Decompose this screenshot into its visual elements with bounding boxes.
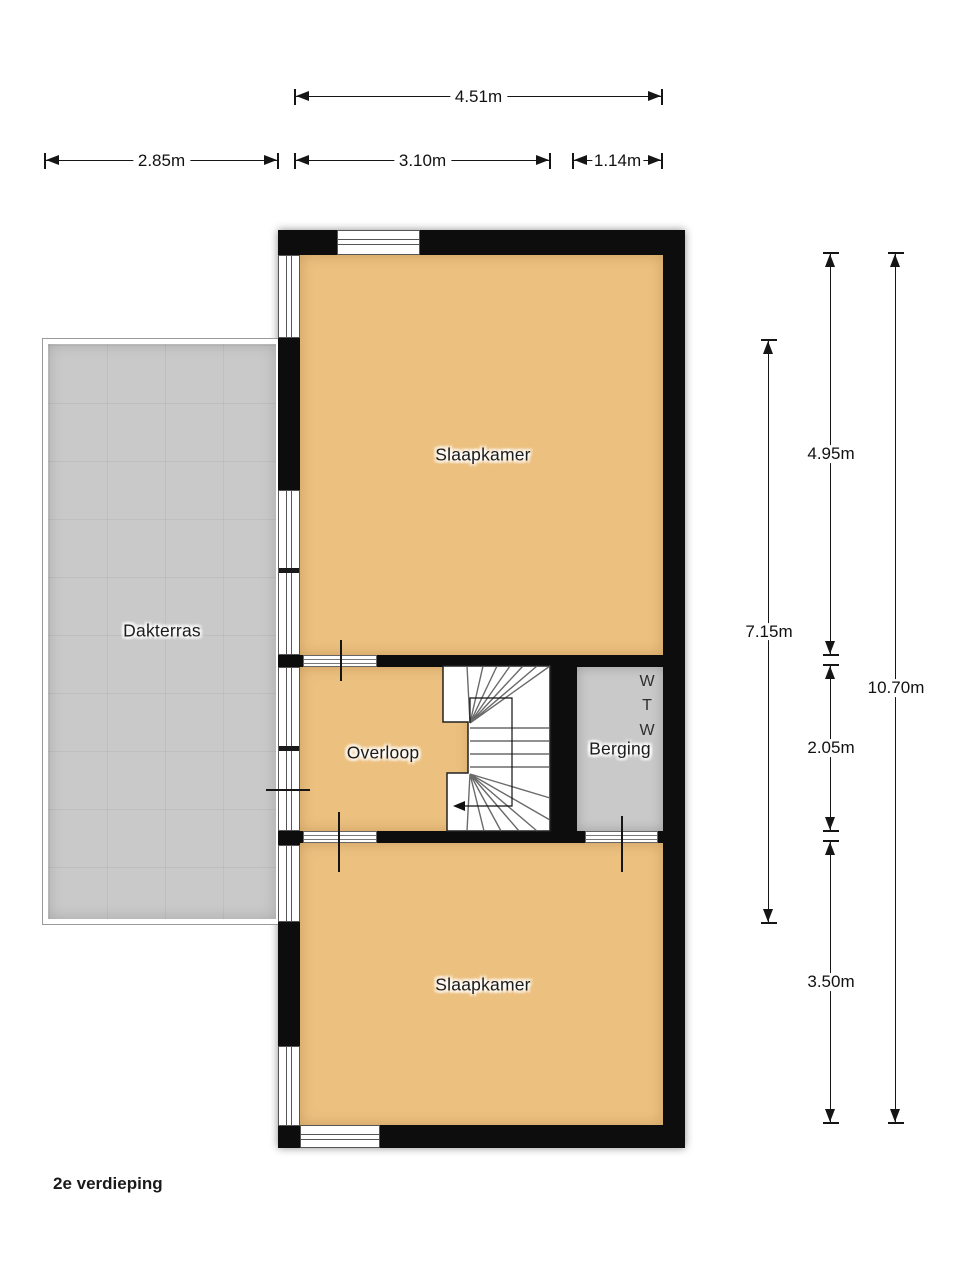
window-mullion [279,746,299,751]
storage-letter-t: T [642,697,652,715]
dimension-label: 10.70m [863,679,930,697]
door-swing-line [266,789,310,791]
room-label-storage: Berging [589,739,651,760]
floorplan-canvas: Slaapkamer Dakterras Overloop Berging Sl… [0,0,960,1280]
room-label-landing: Overloop [347,743,420,764]
window [278,255,300,338]
window [337,230,420,255]
room-label-bedroom-bottom: Slaapkamer [435,975,530,996]
storage-letter-w1: W [639,673,654,691]
dimension-top-width: 4.51m [295,96,662,97]
staircase [440,655,555,845]
room-label-terrace: Dakterras [123,621,201,642]
dimension-label: 3.50m [802,973,859,991]
dimension-storage-width: 1.14m [573,160,662,161]
dimension-terrace-height: 7.15m [768,340,769,923]
dimension-label: 7.15m [740,623,797,641]
door-opening [303,831,377,843]
window [278,1046,300,1126]
dimension-middle-height: 2.05m [830,665,831,831]
dimension-lower-room-height: 3.50m [830,841,831,1123]
dimension-room-width: 3.10m [295,160,550,161]
window [300,1125,380,1148]
wall-right [663,230,685,1148]
room-label-bedroom-top: Slaapkamer [435,445,530,466]
dimension-label: 2.85m [133,152,190,170]
wall-stair-storage [552,655,577,843]
dimension-total-height: 10.70m [895,253,896,1123]
door-swing-line [340,640,342,681]
floor-title: 2e verdieping [53,1174,163,1194]
dimension-terrace-width: 2.85m [45,160,278,161]
dimension-label: 4.51m [450,88,507,106]
dimension-label: 3.10m [394,152,451,170]
dimension-label: 4.95m [802,445,859,463]
dimension-label: 2.05m [802,739,859,757]
storage-letter-w2: W [639,722,654,740]
door-swing-line [338,812,340,872]
window-mullion [279,568,299,573]
window [278,845,300,922]
dimension-label: 1.14m [592,152,643,170]
dimension-upper-room-height: 4.95m [830,253,831,655]
door-swing-line [621,816,623,872]
